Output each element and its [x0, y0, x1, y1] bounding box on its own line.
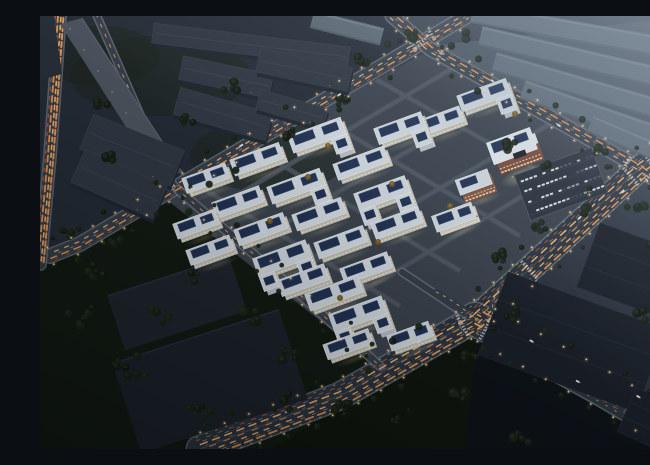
atmosphere-layer: [40, 16, 650, 449]
render-canvas: [40, 16, 650, 449]
vignette-overlay: [40, 16, 650, 449]
aerial-render-image: [40, 16, 650, 449]
